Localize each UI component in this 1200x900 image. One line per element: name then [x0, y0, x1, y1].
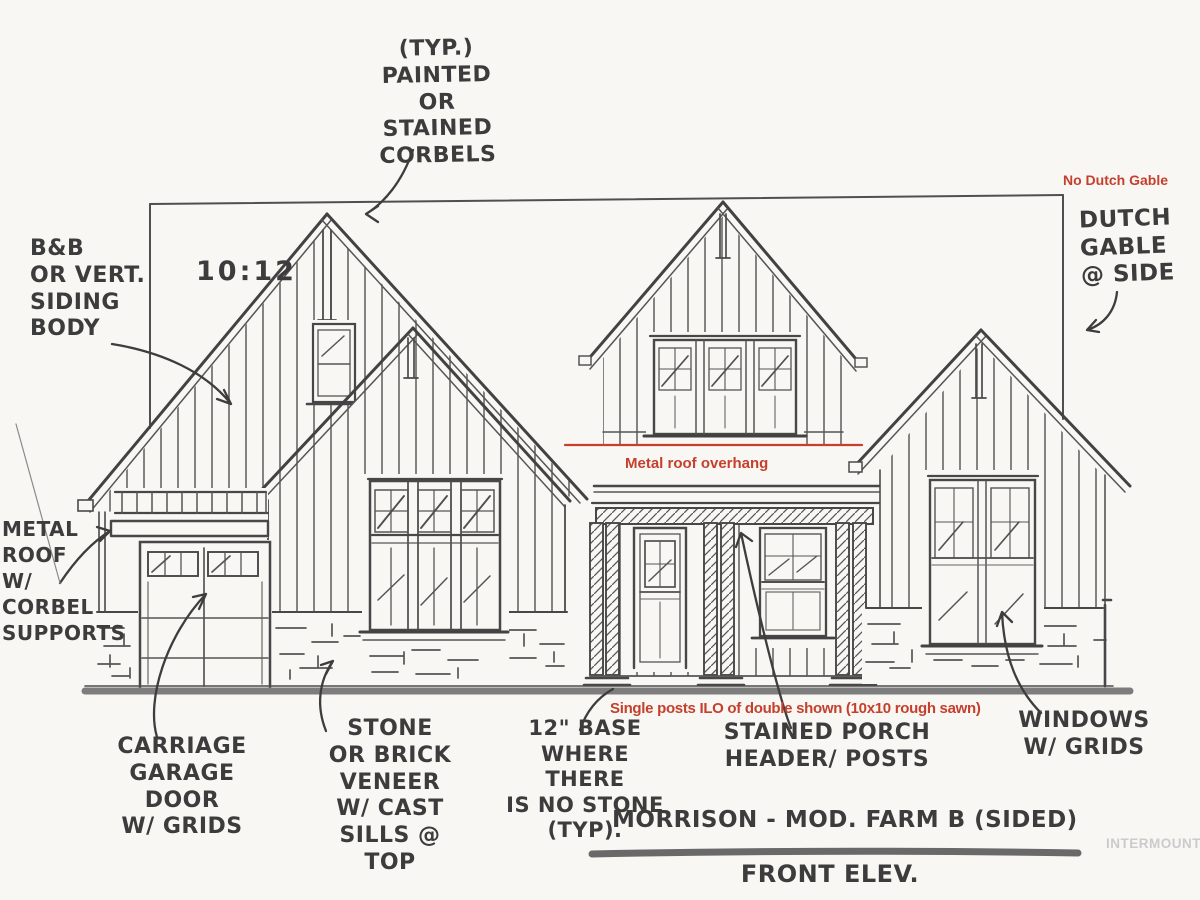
- note-metal-roof: METAL ROOF W/ CORBEL SUPPORTS: [2, 516, 126, 646]
- garage-door: [138, 540, 272, 688]
- ground-line: [85, 686, 1130, 691]
- redline-no-dutch-gable: No Dutch Gable: [1063, 172, 1168, 188]
- note-stone-veneer: STONE OR BRICK VENEER W/ CAST SILLS @ TO…: [300, 716, 480, 877]
- dutch-gable-arrow: [1087, 292, 1117, 332]
- redline-metal-roof-overhang: Metal roof overhang: [625, 455, 768, 472]
- porch: [584, 468, 897, 685]
- drawing-title: MORRISON - MOD. FARM B (SIDED): [612, 806, 1092, 834]
- note-siding-body: B&B OR VERT. SIDING BODY: [30, 236, 145, 343]
- watermark: INTERMOUNTAIN: [1106, 836, 1200, 851]
- drawing-subtitle: FRONT ELEV.: [730, 860, 930, 889]
- roof-slope-label: 10:12: [196, 256, 297, 289]
- scanned-elevation-page: (TYP.) PAINTED OR STAINED CORBELS B&B OR…: [0, 0, 1200, 900]
- note-porch-posts: STAINED PORCH HEADER/ POSTS: [722, 720, 932, 774]
- center-dormer-gable: [579, 202, 867, 446]
- note-dutch-gable: DUTCH GABLE @ SIDE: [1079, 204, 1176, 290]
- right-gable: [849, 330, 1130, 686]
- redline-single-posts: Single posts ILO of double shown (10x10 …: [610, 700, 981, 717]
- title-underline: [592, 851, 1078, 854]
- garage-metal-roof: [111, 488, 268, 538]
- note-windows-grids: WINDOWS W/ GRIDS: [1014, 708, 1154, 762]
- note-carriage-door: CARRIAGE GARAGE DOOR W/ GRIDS: [112, 734, 252, 841]
- note-corbels: (TYP.) PAINTED OR STAINED CORBELS: [361, 35, 513, 172]
- main-gable-window: [360, 474, 509, 642]
